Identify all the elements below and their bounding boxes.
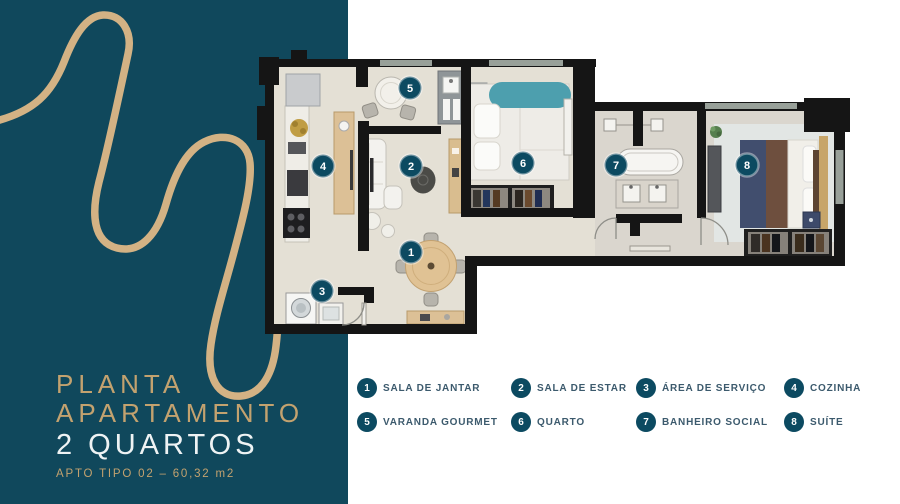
legend-label: SALA DE ESTAR <box>537 383 627 394</box>
legend-label: ÁREA DE SERVIÇO <box>662 383 766 394</box>
sliding-door <box>564 99 572 155</box>
legend-item-1: 1 SALA DE JANTAR <box>357 378 511 398</box>
entry-door-leaf <box>630 246 670 251</box>
legend-label: COZINHA <box>810 383 861 394</box>
double-sink-icon <box>616 180 678 208</box>
cooktop-icon <box>283 208 310 238</box>
marker-number: 2 <box>408 161 414 173</box>
wardrobe-icon <box>466 185 554 212</box>
legend-number-badge: 4 <box>784 378 804 398</box>
oven-icon <box>287 170 308 196</box>
marker-number: 8 <box>744 160 750 172</box>
marker-number: 6 <box>520 158 526 170</box>
gourmet-counter-sink-icon <box>438 71 463 124</box>
legend-item-4: 4 COZINHA <box>784 378 892 398</box>
legend-item-2: 2 SALA DE ESTAR <box>511 378 636 398</box>
legend-item-3: 3 ÁREA DE SERVIÇO <box>636 378 784 398</box>
legend-number-badge: 2 <box>511 378 531 398</box>
tall-cabinet-icon <box>708 146 721 212</box>
plant-icon <box>710 126 722 138</box>
plan-marker-3: 3 <box>311 280 334 303</box>
legend-item-6: 6 QUARTO <box>511 412 636 432</box>
legend-label: SUÍTE <box>810 417 843 428</box>
marker-number: 7 <box>613 160 619 172</box>
console-icon <box>449 139 462 213</box>
legend-item-8: 8 SUÍTE <box>784 412 892 432</box>
plan-marker-6: 6 <box>512 152 535 175</box>
chair-icon <box>424 293 438 306</box>
legend-number-badge: 8 <box>784 412 804 432</box>
legend-item-5: 5 VARANDA GOURMET <box>357 412 511 432</box>
plan-marker-4: 4 <box>312 155 335 178</box>
suite-nightstand-icon <box>803 212 820 228</box>
marker-number: 3 <box>319 286 325 298</box>
plan-marker-5: 5 <box>399 77 422 100</box>
sideboard-icon <box>407 311 464 324</box>
fridge-icon <box>286 74 320 106</box>
plan-marker-8: 8 <box>736 154 759 177</box>
tv-icon <box>370 158 374 192</box>
legend-label: SALA DE JANTAR <box>383 383 480 394</box>
legend-label: QUARTO <box>537 417 585 428</box>
legend-number-badge: 3 <box>636 378 656 398</box>
microwave-icon <box>288 142 306 154</box>
legend-number-badge: 5 <box>357 412 377 432</box>
laundry-sink-icon <box>319 303 343 326</box>
legend-item-7: 7 BANHEIRO SOCIAL <box>636 412 784 432</box>
legend-number-badge: 6 <box>511 412 531 432</box>
room-legend: 1 SALA DE JANTAR 2 SALA DE ESTAR 3 ÁREA … <box>357 378 892 432</box>
legend-number-badge: 1 <box>357 378 377 398</box>
legend-number-badge: 7 <box>636 412 656 432</box>
marker-number: 1 <box>408 247 414 259</box>
marker-number: 5 <box>407 83 413 95</box>
pouf-icon <box>382 225 395 238</box>
legend-label: BANHEIRO SOCIAL <box>662 417 768 428</box>
suite-wardrobe-icon <box>744 229 832 257</box>
legend-label: VARANDA GOURMET <box>383 417 498 428</box>
kitchen-island <box>334 112 354 214</box>
plan-marker-1: 1 <box>400 241 423 264</box>
plan-marker-2: 2 <box>400 155 423 178</box>
marker-number: 4 <box>320 161 327 173</box>
plan-marker-7: 7 <box>605 154 628 177</box>
brochure-page: { "sidebar": { "title_line1": "PLANTA", … <box>0 0 900 504</box>
flowers-icon <box>290 119 308 137</box>
